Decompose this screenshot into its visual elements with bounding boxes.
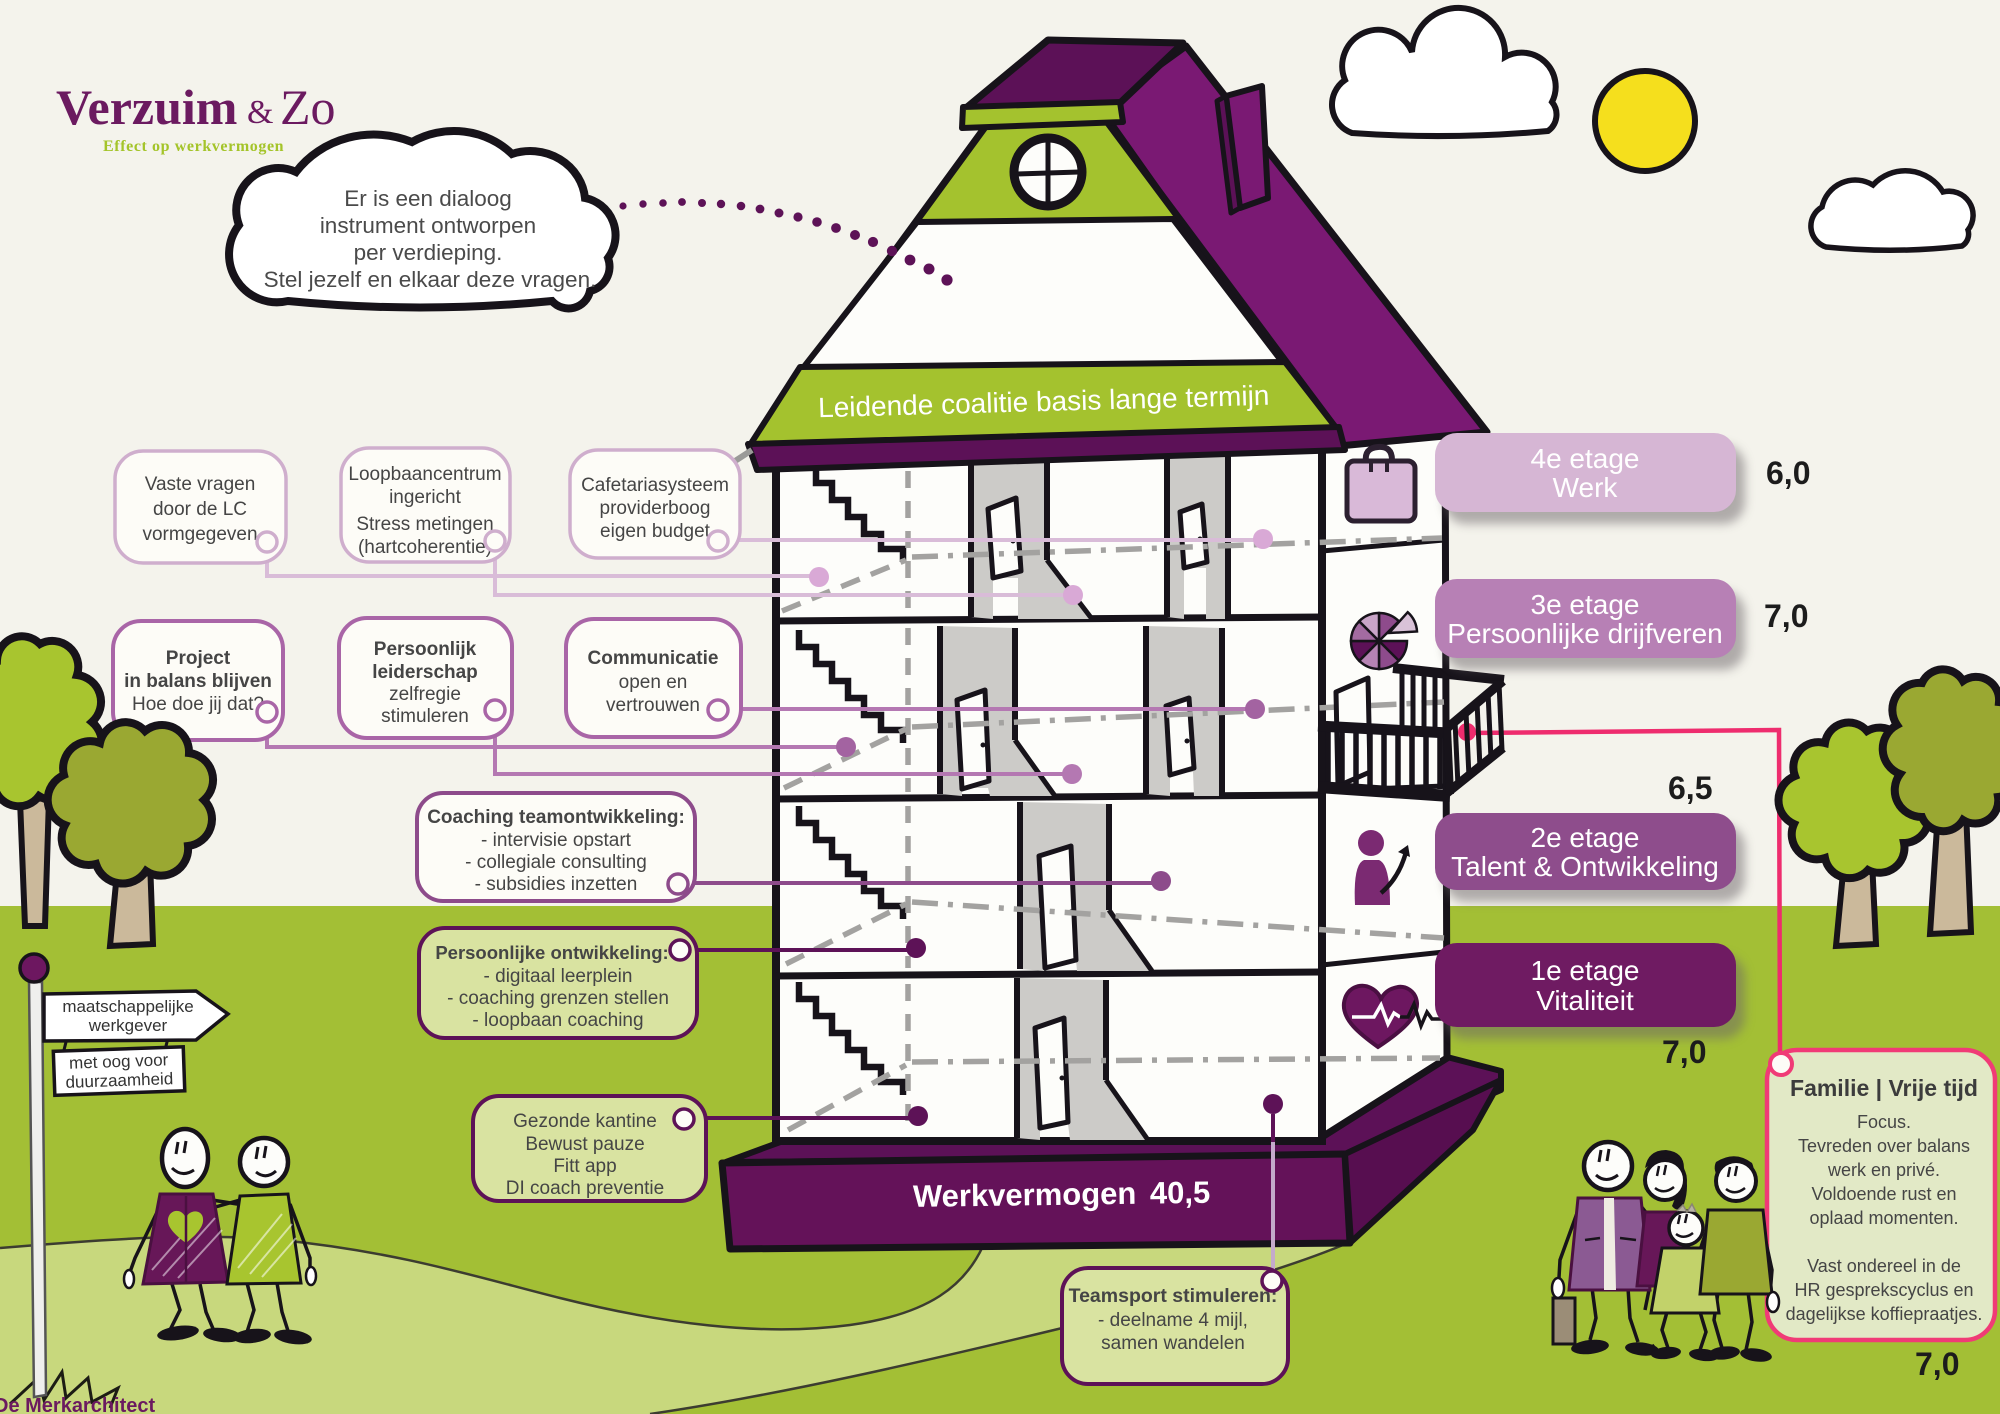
svg-text:Familie | Vrije tijd: Familie | Vrije tijd [1790, 1075, 1978, 1101]
svg-text:7,0: 7,0 [1662, 1034, 1706, 1070]
svg-text:providerboog: providerboog [600, 498, 711, 519]
svg-text:De Merkarchitect: De Merkarchitect [0, 1395, 156, 1414]
svg-text:Voldoende rust en: Voldoende rust en [1811, 1184, 1956, 1204]
svg-text:Gezonde kantine: Gezonde kantine [513, 1111, 657, 1132]
svg-text:Hoe doe jij dat?: Hoe doe jij dat? [132, 694, 264, 715]
svg-text:3e etage: 3e etage [1531, 589, 1640, 620]
svg-text:ingericht: ingericht [389, 487, 462, 508]
svg-text:leiderschap: leiderschap [372, 662, 478, 683]
svg-text:oplaad momenten.: oplaad momenten. [1809, 1208, 1958, 1228]
svg-text:Werkvermogen: Werkvermogen [913, 1176, 1137, 1214]
svg-text:werkgever: werkgever [88, 1016, 168, 1035]
svg-text:6,0: 6,0 [1766, 455, 1810, 491]
svg-text:Loopbaancentrum: Loopbaancentrum [348, 464, 501, 485]
svg-text:Bewust pauze: Bewust pauze [525, 1134, 644, 1155]
svg-text:in balans blijven: in balans blijven [124, 671, 272, 692]
svg-text:vormgegeven: vormgegeven [142, 524, 257, 545]
svg-text:- deelname 4 mijl,: - deelname 4 mijl, [1098, 1310, 1248, 1331]
svg-text:eigen budget: eigen budget [600, 521, 711, 542]
svg-text:vertrouwen: vertrouwen [606, 695, 700, 716]
svg-text:samen wandelen: samen wandelen [1101, 1333, 1245, 1354]
svg-text:instrument ontworpen: instrument ontworpen [320, 213, 536, 238]
svg-text:Vitaliteit: Vitaliteit [1536, 985, 1634, 1016]
svg-text:Vaste vragen: Vaste vragen [145, 474, 256, 495]
svg-text:Teamsport stimuleren:: Teamsport stimuleren: [1069, 1285, 1278, 1307]
svg-text:Fitt app: Fitt app [553, 1156, 616, 1177]
svg-text:Persoonlijke ontwikkeling:: Persoonlijke ontwikkeling: [435, 942, 668, 963]
svg-text:Project: Project [166, 648, 231, 669]
svg-text:Talent & Ontwikkeling: Talent & Ontwikkeling [1451, 851, 1719, 882]
svg-text:maatschappelijke: maatschappelijke [62, 997, 193, 1016]
svg-text:- subsidies inzetten: - subsidies inzetten [475, 874, 638, 895]
svg-text:Werk: Werk [1553, 472, 1619, 503]
svg-text:2e etage: 2e etage [1531, 822, 1640, 853]
svg-text:1e etage: 1e etage [1531, 955, 1640, 986]
svg-text:6,5: 6,5 [1668, 770, 1712, 806]
svg-text:Vast ondereel in de: Vast ondereel in de [1807, 1256, 1961, 1276]
svg-text:Effect op werkvermogen: Effect op werkvermogen [103, 138, 284, 155]
svg-text:4e etage: 4e etage [1531, 443, 1640, 474]
svg-text:Communicatie: Communicatie [588, 648, 719, 669]
svg-text:stimuleren: stimuleren [381, 706, 469, 727]
svg-text:Stress metingen: Stress metingen [356, 514, 493, 535]
svg-text:Zo: Zo [280, 79, 336, 135]
svg-text:per verdieping.: per verdieping. [354, 240, 503, 265]
svg-text:7,0: 7,0 [1915, 1346, 1959, 1382]
svg-text:(hartcoherentie): (hartcoherentie) [358, 537, 492, 558]
svg-text:Persoonlijk: Persoonlijk [374, 639, 477, 660]
svg-text:DI coach preventie: DI coach preventie [506, 1178, 664, 1199]
svg-text:- collegiale consulting: - collegiale consulting [465, 852, 647, 873]
svg-text:Cafetariasysteem: Cafetariasysteem [581, 475, 729, 496]
svg-text:Stel jezelf en elkaar deze vra: Stel jezelf en elkaar deze vragen. [264, 267, 597, 292]
svg-text:Persoonlijke drijfveren: Persoonlijke drijfveren [1447, 618, 1722, 649]
svg-text:duurzaamheid: duurzaamheid [65, 1069, 173, 1092]
svg-text:door de LC: door de LC [153, 499, 247, 520]
svg-text:Focus.: Focus. [1857, 1112, 1911, 1132]
svg-text:40,5: 40,5 [1150, 1175, 1211, 1211]
svg-text:dagelijkse koffiepraatjes.: dagelijkse koffiepraatjes. [1786, 1304, 1983, 1324]
svg-text:open en: open en [619, 672, 688, 693]
svg-text:- loopbaan coaching: - loopbaan coaching [472, 1010, 643, 1031]
svg-text:Coaching teamontwikkeling:: Coaching teamontwikkeling: [427, 807, 685, 828]
svg-text:werk en privé.: werk en privé. [1827, 1160, 1940, 1180]
svg-text:- digitaal leerplein: - digitaal leerplein [484, 966, 633, 987]
svg-text:Er is een dialoog: Er is een dialoog [344, 186, 512, 211]
svg-text:zelfregie: zelfregie [389, 684, 461, 705]
svg-text:Tevreden over balans: Tevreden over balans [1798, 1136, 1970, 1156]
svg-text:- intervisie opstart: - intervisie opstart [481, 830, 632, 851]
svg-text:&: & [247, 94, 273, 131]
svg-text:Verzuim: Verzuim [56, 79, 237, 135]
svg-text:7,0: 7,0 [1764, 598, 1808, 634]
svg-text:HR gesprekscyclus en: HR gesprekscyclus en [1794, 1280, 1973, 1300]
svg-text:- coaching grenzen stellen: - coaching grenzen stellen [447, 988, 669, 1009]
